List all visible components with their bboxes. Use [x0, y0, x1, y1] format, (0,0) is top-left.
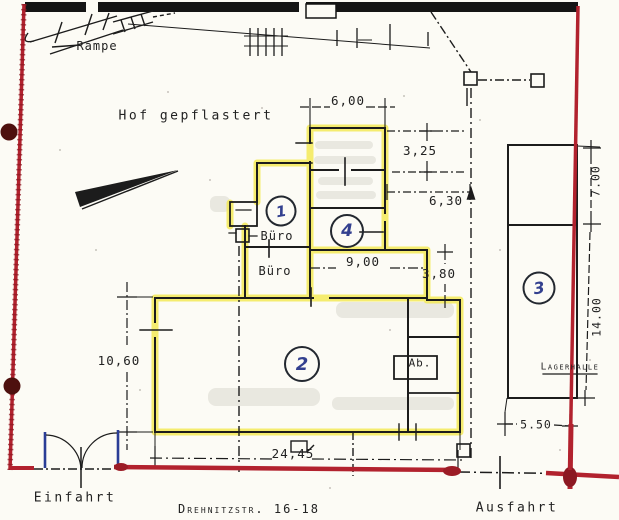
dim-top-width: 6,00: [331, 95, 365, 108]
label-ausfahrt: Ausfahrt: [476, 502, 559, 515]
dim-lager-top: 7.00: [590, 165, 602, 197]
label-lagerhalle: Lagerhalle: [541, 362, 600, 372]
highlight-marker: [155, 128, 460, 432]
floorplan-scan: Rampe Hof gepflastert Büro Büro Ab. Lage…: [0, 0, 619, 520]
dim-corridor-width: 9,00: [346, 256, 380, 269]
dim-hall-width: 24,45: [272, 448, 315, 461]
wall-hatch-marks: [128, 24, 430, 56]
dim-east-gap: 6,30: [429, 195, 463, 208]
slope-arrow: [75, 170, 178, 209]
punch-hole-bottom: [4, 378, 21, 395]
dim-lager-main: 14.00: [591, 297, 603, 337]
label-rampe: Rampe: [76, 40, 117, 52]
dim-hall-depth: 10,60: [98, 355, 141, 368]
dim-corridor-depth: 3,80: [422, 268, 456, 281]
label-einfahrt: Einfahrt: [34, 492, 117, 505]
label-hof-gepflastert: Hof gepflastert: [119, 110, 274, 123]
room-number-2: 2: [284, 346, 320, 382]
label-buero-2: Büro: [259, 265, 292, 277]
punch-hole-top: [1, 124, 18, 141]
label-buero-1: Büro: [261, 230, 294, 242]
label-ab: Ab.: [409, 358, 432, 369]
plan-linework: [0, 0, 619, 520]
label-street-address: Drehnitzstr. 16-18: [178, 503, 320, 515]
dim-lager-bottom: 5.50: [520, 419, 552, 431]
entrance-gate: [34, 430, 118, 488]
room-number-4: 4: [330, 214, 364, 248]
dim-upper-right-depth: 3,25: [403, 145, 437, 158]
